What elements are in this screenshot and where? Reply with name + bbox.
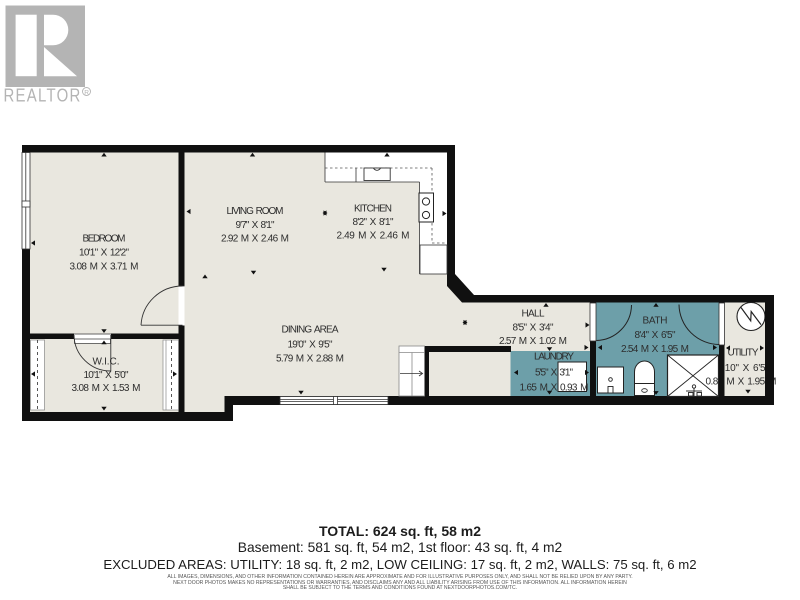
svg-text:HALL: HALL xyxy=(522,309,545,320)
svg-text:'10" X 6'5": '10" X 6'5" xyxy=(723,363,769,374)
svg-text:19'0" X 9'5": 19'0" X 9'5" xyxy=(288,340,333,351)
svg-text:5.79 M X 2.88 M: 5.79 M X 2.88 M xyxy=(276,354,344,365)
svg-text:1.65 M X 0.93 M: 1.65 M X 0.93 M xyxy=(520,383,589,394)
svg-text:2.92 M X 2.46 M: 2.92 M X 2.46 M xyxy=(221,234,289,245)
svg-text:10'1" X 5'0": 10'1" X 5'0" xyxy=(84,370,129,381)
svg-text:3.08 M X 1.53 M: 3.08 M X 1.53 M xyxy=(72,383,141,394)
svg-text:UTILITY: UTILITY xyxy=(728,348,759,359)
svg-text:8'4" X 6'5": 8'4" X 6'5" xyxy=(635,330,676,341)
svg-text:2.49 M X 2.46 M: 2.49 M X 2.46 M xyxy=(337,231,410,242)
svg-text:BATH: BATH xyxy=(643,316,668,327)
svg-text:8'5" X 3'4": 8'5" X 3'4" xyxy=(513,323,554,334)
svg-text:R: R xyxy=(84,89,89,96)
svg-text:LAUNDRY: LAUNDRY xyxy=(534,352,574,363)
svg-text:3.08 M X 3.71 M: 3.08 M X 3.71 M xyxy=(70,262,139,273)
svg-text:10'1" X 12'2": 10'1" X 12'2" xyxy=(79,248,129,259)
svg-text:5'5" X 3'1": 5'5" X 3'1" xyxy=(535,368,573,379)
svg-text:LIVING ROOM: LIVING ROOM xyxy=(227,206,284,217)
svg-text:W.I.C.: W.I.C. xyxy=(93,357,120,368)
svg-text:BEDROOM: BEDROOM xyxy=(83,234,126,245)
svg-text:2.57 M X 1.02 M: 2.57 M X 1.02 M xyxy=(499,336,567,347)
svg-text:8'2" X 8'1": 8'2" X 8'1" xyxy=(353,217,394,228)
svg-text:2.54 M X 1.95 M: 2.54 M X 1.95 M xyxy=(621,344,689,355)
svg-text:KITCHEN: KITCHEN xyxy=(354,204,392,215)
svg-text:REALTOR: REALTOR xyxy=(4,86,82,106)
svg-text:9'7" X 8'1": 9'7" X 8'1" xyxy=(236,220,275,231)
svg-text:DINING AREA: DINING AREA xyxy=(282,325,339,336)
